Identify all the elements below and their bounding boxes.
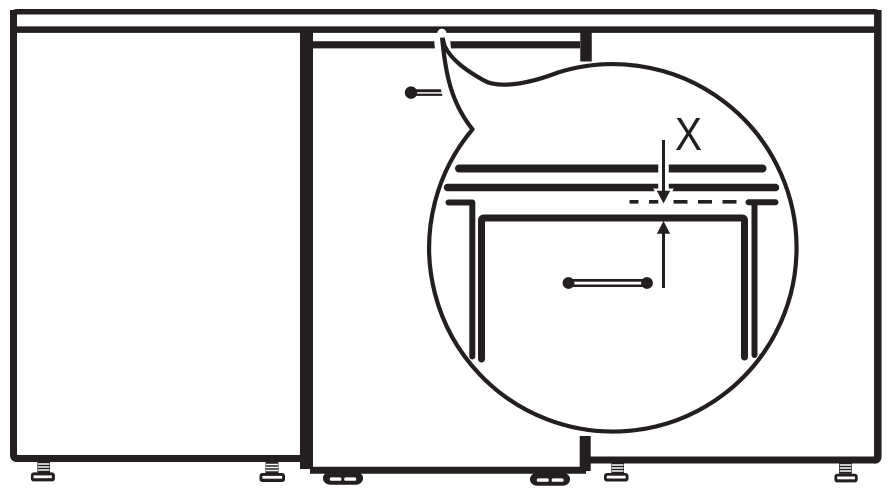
svg-text:X: X [675, 110, 702, 161]
